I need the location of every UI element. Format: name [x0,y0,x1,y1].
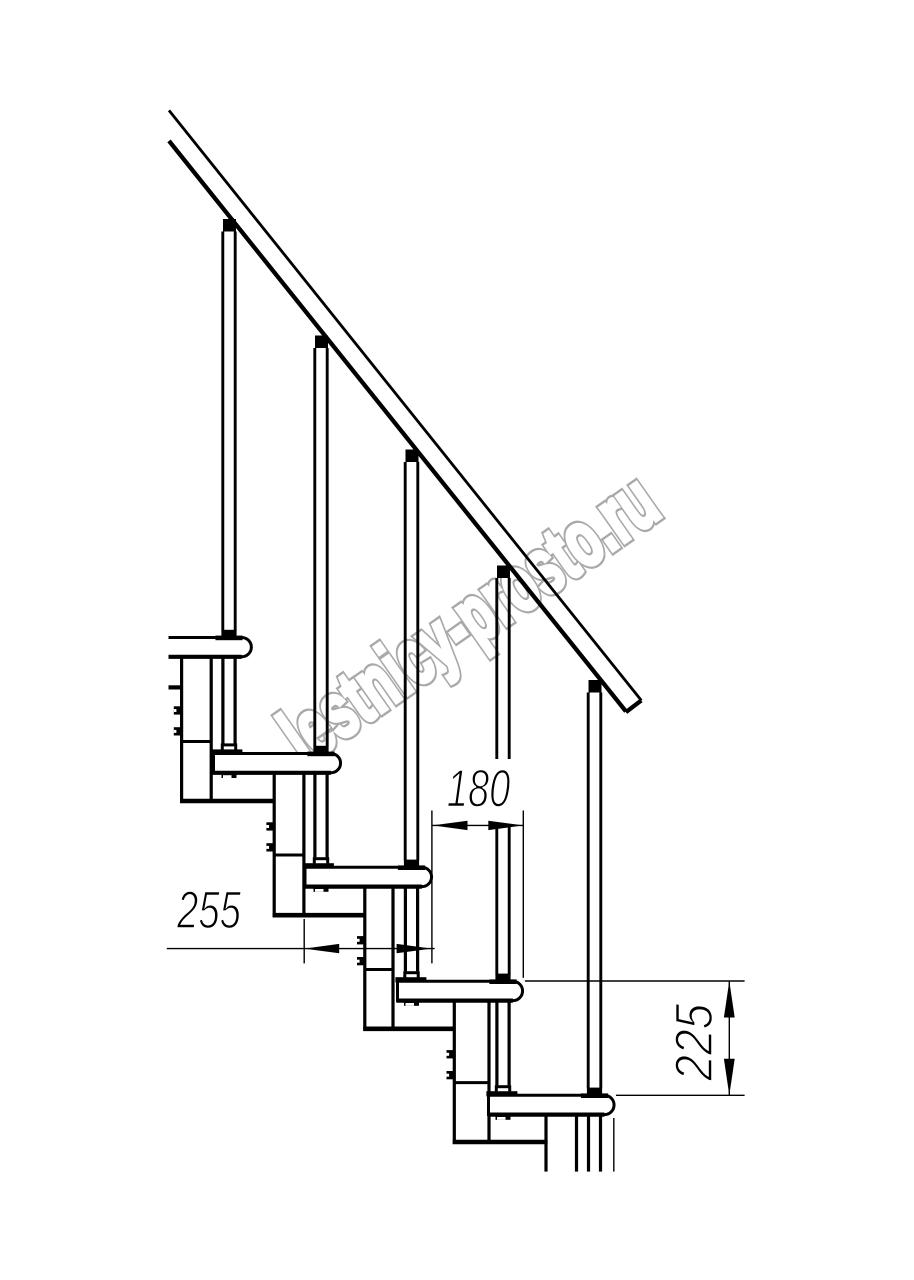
svg-text:255: 255 [176,881,241,940]
svg-text:180: 180 [447,760,511,819]
svg-text:225: 225 [665,1003,724,1081]
